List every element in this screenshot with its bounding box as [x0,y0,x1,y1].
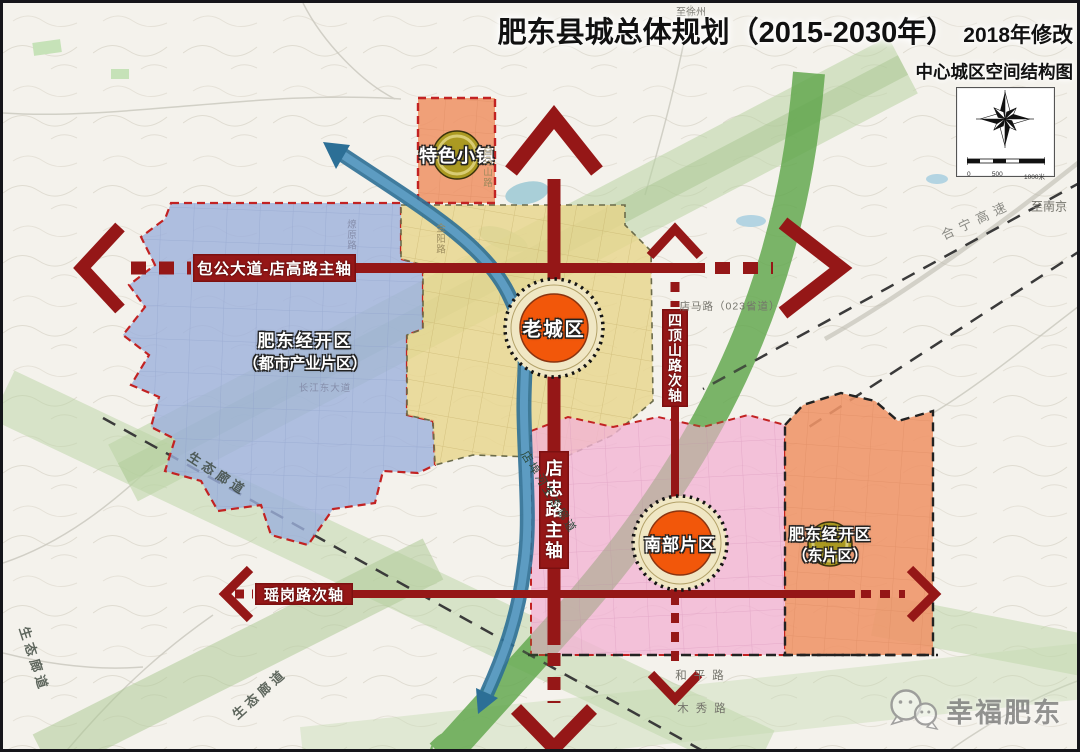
labels-layer: 包公大道-店高路主轴 店忠路主轴 四顶山路次轴 瑶岗路次轴 老城区 南部片区 特… [3,3,1077,749]
west-dev-label-line2: （都市产业片区） [243,352,367,374]
eco-corridor-label-1: 生态廊道 [184,447,251,500]
to-nanjing-label: 至南京 [1031,198,1067,215]
wechat-icon [887,687,941,733]
title-revision: 2018年修改 [963,19,1073,49]
old-town-label: 老城区 [522,315,585,342]
eco-corridor-label-3: 生态廊道 [15,624,54,695]
axis-sidingshan-label: 四顶山路次轴 [662,309,688,407]
west-dev-label-line1: 肥东经开区 [243,327,367,352]
liaoyuan-road-label: 燎原路 [343,219,357,251]
baimashan-road-label: 白马山路 [479,146,493,188]
south-district-label: 南部片区 [644,531,716,556]
heping-road-label: 和平路 [675,667,731,683]
axis-baogong-label: 包公大道-店高路主轴 [193,254,356,282]
page-title: 肥东县城总体规划（2015-2030年） [498,9,956,51]
scale-bar: 0 500 1000米 [967,152,1045,181]
east-dev-label-line1: 肥东经开区 [789,523,872,545]
scale-tick-1000: 1000米 [1024,171,1045,181]
jinyang-road-label: 金阳路 [432,223,446,255]
changjiang-east-road-label: 长江东大道 [299,380,352,394]
muxiu-road-label: 木秀路 [677,700,733,716]
east-dev-label: 肥东经开区 （东片区） [789,523,872,566]
west-dev-label: 肥东经开区 （都市产业片区） [243,327,367,374]
axis-yaogang-label: 瑶岗路次轴 [255,583,353,605]
hening-expressway-label: 合宁高速 [938,194,1015,243]
scale-labels: 0 500 1000米 [967,171,1045,181]
title-block: 肥东县城总体规划（2015-2030年） 2018年修改 中心城区空间结构图 [473,9,1073,84]
scale-tick-0: 0 [967,171,971,181]
scale-tick-500: 500 [992,171,1003,181]
map-subtitle: 中心城区空间结构图 [473,59,1073,84]
planning-map: 包公大道-店高路主轴 店忠路主轴 四顶山路次轴 瑶岗路次轴 老城区 南部片区 特… [0,0,1080,752]
compass-rose-icon [957,88,1052,148]
watermark-text: 幸福肥东 [946,691,1062,730]
scale-bar-graphic [967,157,1045,165]
dianma-road-label: 店马路（023省道） [679,299,780,314]
compass-box: 0 500 1000米 [956,87,1055,177]
watermark: 幸福肥东 [887,687,1062,733]
east-dev-label-line2: （东片区） [789,545,872,566]
eco-corridor-label-2: 生态廊道 [227,663,290,723]
